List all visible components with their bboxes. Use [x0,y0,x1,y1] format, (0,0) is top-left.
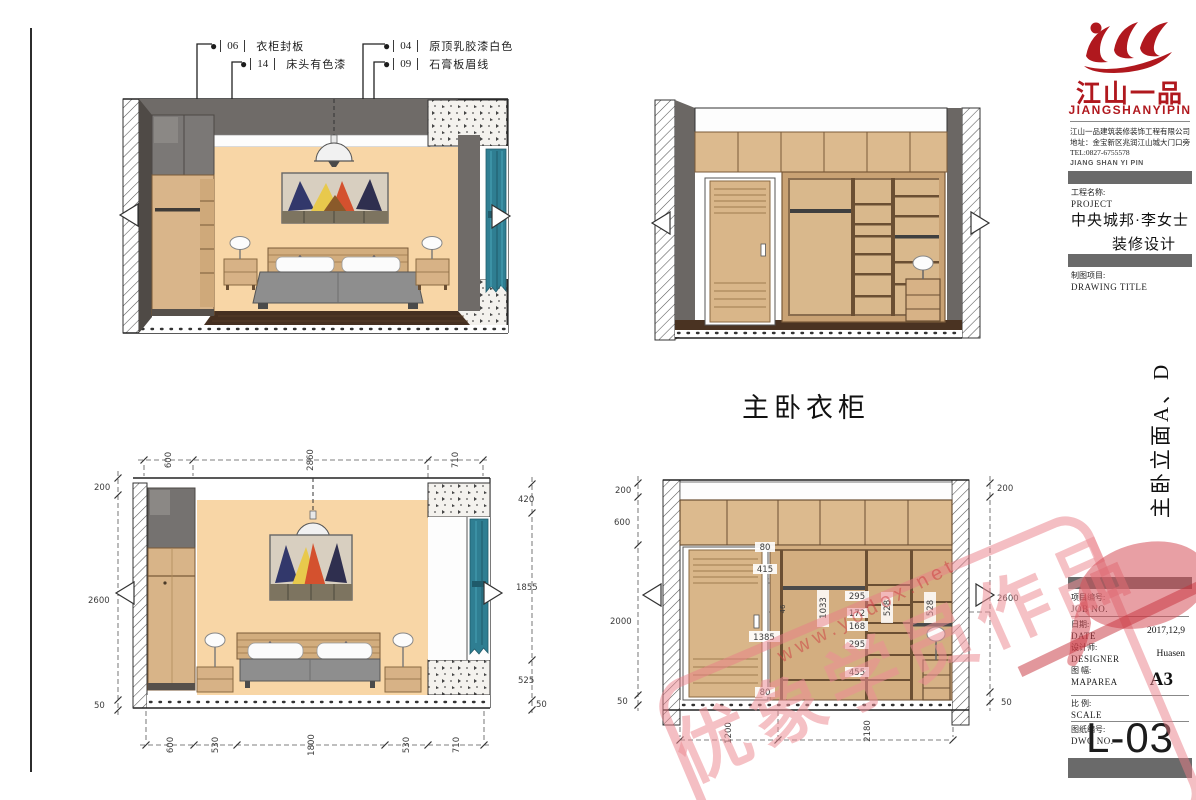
job-no-label-en: JOB NO. [1071,603,1189,615]
drawing-title-label: 制图项目: DRAWING TITLE [1071,271,1147,293]
upper-cabinets [680,500,952,545]
dim-label: 528 [883,600,893,616]
dim-label: 710 [451,452,461,468]
dim-label: 295 [849,592,865,602]
wardrobe-left [139,99,214,333]
company-address: 地址：金宝新区兆润江山城大门口旁 [1070,138,1192,149]
dim-label: 2860 [306,449,316,471]
dim-label: 600 [614,518,630,528]
dim-label: 600 [166,737,176,753]
callout-bullet-icon: ● [383,41,390,51]
drawing-title-label-en: DRAWING TITLE [1071,281,1147,293]
callout-number: 14 [250,58,275,70]
dim-label: 600 [164,452,174,468]
dim-label: 528 [926,600,936,616]
callout-bullet-icon: ● [210,41,217,51]
project-label-cn: 工程名称: [1071,188,1113,198]
wall-painting [282,173,388,223]
divider [1070,121,1190,122]
dim-label: 1200 [724,722,734,744]
divider-bar [1068,758,1192,778]
callout-14: ● 14 床头有色漆 [240,56,346,72]
drawing-number: L-03 [1068,714,1192,762]
dim-label: 200 [94,483,110,493]
callout-number: 06 [220,40,245,52]
brand-name-en: JIANGSHANYIPIN [1068,103,1192,117]
drawing-title-label-cn: 制图项目: [1071,271,1147,281]
row-job-no: 项目编号: JOB NO. [1071,593,1189,617]
company-name: 江山一品建筑装修装饰工程有限公司 [1070,127,1192,138]
upper-cabinets [695,132,947,172]
dim-label: 415 [757,565,773,575]
company-info: 江山一品建筑装修装饰工程有限公司 地址：金宝新区兆润江山城大门口旁 TEL:08… [1070,127,1192,169]
sheet-border-line [30,28,32,772]
bed-group [253,248,423,309]
dim-label: 80 [760,688,771,698]
dim-label: 80 [760,543,771,553]
title-block: 江山一品 JIANGSHANYIPIN 江山一品建筑装修装饰工程有限公司 地址：… [1068,0,1192,800]
dim-label: 1800 [307,734,317,756]
dim-label: 530 [402,737,412,753]
project-label: 工程名称: PROJECT [1071,188,1113,210]
dim-label: 50 [536,700,547,710]
elevation-a-perspective-drawing [118,83,513,345]
dim-label: 420 [518,495,534,505]
callout-number: 09 [393,58,418,70]
dim-label: 295 [849,640,865,650]
callout-06: ● 06 衣柜封板 [210,38,304,54]
project-name-line2: 装修设计 [1068,233,1192,254]
row-date: 日期: DATE 2017,12,9 [1071,620,1189,642]
date-value: 2017,12,9 [1147,626,1185,636]
bed-group [237,633,380,688]
callout-number: 04 [393,40,418,52]
entry-door [705,178,775,325]
dim-label: 455 [849,668,865,678]
dim-label: 710 [452,737,462,753]
row-designer: 设计师: DESIGNER Huasen [1071,643,1189,665]
callout-bullet-icon: ● [383,59,390,69]
dim-label: 530 [211,737,221,753]
callout-04: ● 04 原顶乳胶漆白色 [383,38,513,54]
section-title: 主卧衣柜 [742,386,870,425]
maparea-value: A3 [1150,669,1173,691]
dim-label: 172 [849,609,865,619]
designer-value: Huasen [1157,649,1186,659]
dim-label: 200 [997,484,1013,494]
dim-label: 1855 [516,583,538,593]
dim-label: 46 [779,604,787,613]
dim-label: 2600 [997,594,1019,604]
callout-label: 原顶乳胶漆白色 [429,38,513,54]
scale-label-cn: 比 例: [1071,699,1189,709]
job-no-label-cn: 项目编号: [1071,593,1189,603]
callout-09: ● 09 石膏板眉线 [383,56,489,72]
divider-bar [1068,171,1192,184]
wardrobe-perspective-drawing [648,83,993,345]
callout-label: 衣柜封板 [256,38,304,54]
drawing-sheet: ● 06 衣柜封板 ● 14 床头有色漆 ● 04 原顶乳胶漆白色 ● 09 石… [0,0,1196,800]
row-maparea: 图 幅: MAPAREA A3 [1071,666,1189,696]
dim-label: 2180 [863,720,873,742]
dim-label: 525 [518,676,534,686]
dim-label: 2600 [88,596,110,606]
wall-painting [270,535,352,600]
elevation-d-dimensioned-drawing: 200 600 2000 50 200 2600 50 1200 2180 [598,443,1038,765]
divider-bar [1068,577,1192,589]
dim-label: 200 [615,486,631,496]
elevation-a-dimensioned-drawing: 600 2860 710 200 2600 50 420 1855 525 50… [80,443,575,765]
dim-label: 50 [94,701,105,711]
company-name-pinyin: JIANG SHAN YI PIN [1070,159,1192,170]
callout-bullet-icon: ● [240,59,247,69]
callout-label: 床头有色漆 [286,56,346,72]
project-name-line1: 中央城邦·李女士 [1068,209,1192,230]
dim-label: 1385 [753,633,775,643]
dim-label: 50 [1001,698,1012,708]
company-logo-icon [1080,18,1180,74]
company-tel: TEL:0827-6755578 [1070,148,1192,159]
dim-label: 2000 [610,617,632,627]
dim-label: 1033 [819,597,829,619]
dim-label: 168 [849,622,865,632]
callout-label: 石膏板眉线 [429,56,489,72]
dim-label: 50 [617,697,628,707]
wardrobe-left [148,488,195,690]
divider-bar [1068,254,1192,267]
project-name: 中央城邦·李女士 装修设计 [1068,209,1192,254]
